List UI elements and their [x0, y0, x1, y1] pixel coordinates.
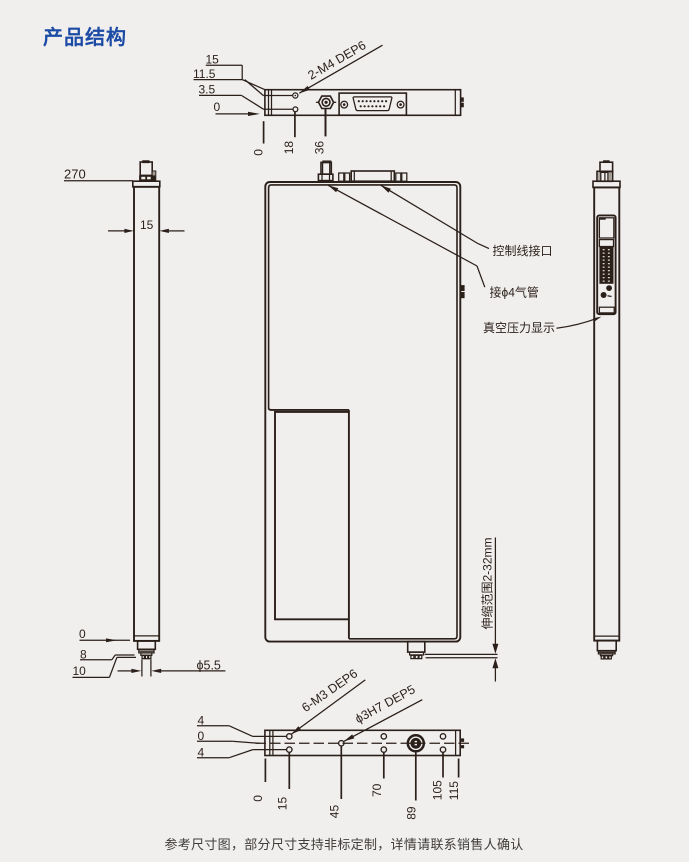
- svg-text:70: 70: [370, 783, 384, 797]
- svg-text:ϕ5.5: ϕ5.5: [197, 658, 221, 672]
- svg-text:270: 270: [64, 167, 86, 182]
- svg-text:0: 0: [79, 627, 86, 641]
- svg-text:控制线接口: 控制线接口: [493, 243, 553, 258]
- svg-text:105: 105: [431, 780, 445, 800]
- svg-text:伸缩范围2-32mm: 伸缩范围2-32mm: [480, 537, 495, 629]
- svg-text:15: 15: [206, 53, 220, 67]
- svg-text:15: 15: [275, 797, 289, 811]
- svg-text:15: 15: [140, 218, 154, 232]
- svg-text:3.5: 3.5: [199, 83, 216, 97]
- svg-text:真空压力显示: 真空压力显示: [483, 321, 555, 335]
- svg-text:0: 0: [251, 149, 265, 156]
- svg-text:89: 89: [404, 806, 418, 820]
- svg-text:0: 0: [214, 100, 221, 114]
- svg-text:参考尺寸图，部分尺寸支持非标定制，详情请联系销售人确认: 参考尺寸图，部分尺寸支持非标定制，详情请联系销售人确认: [164, 837, 523, 852]
- svg-text:0: 0: [251, 795, 265, 802]
- svg-text:18: 18: [282, 141, 296, 155]
- svg-text:接ϕ4气管: 接ϕ4气管: [490, 284, 539, 299]
- svg-text:产品结构: 产品结构: [43, 25, 127, 49]
- svg-text:11.5: 11.5: [193, 67, 216, 81]
- svg-text:45: 45: [328, 805, 342, 819]
- svg-text:10: 10: [73, 664, 87, 678]
- svg-text:115: 115: [447, 781, 461, 800]
- svg-text:36: 36: [312, 141, 326, 155]
